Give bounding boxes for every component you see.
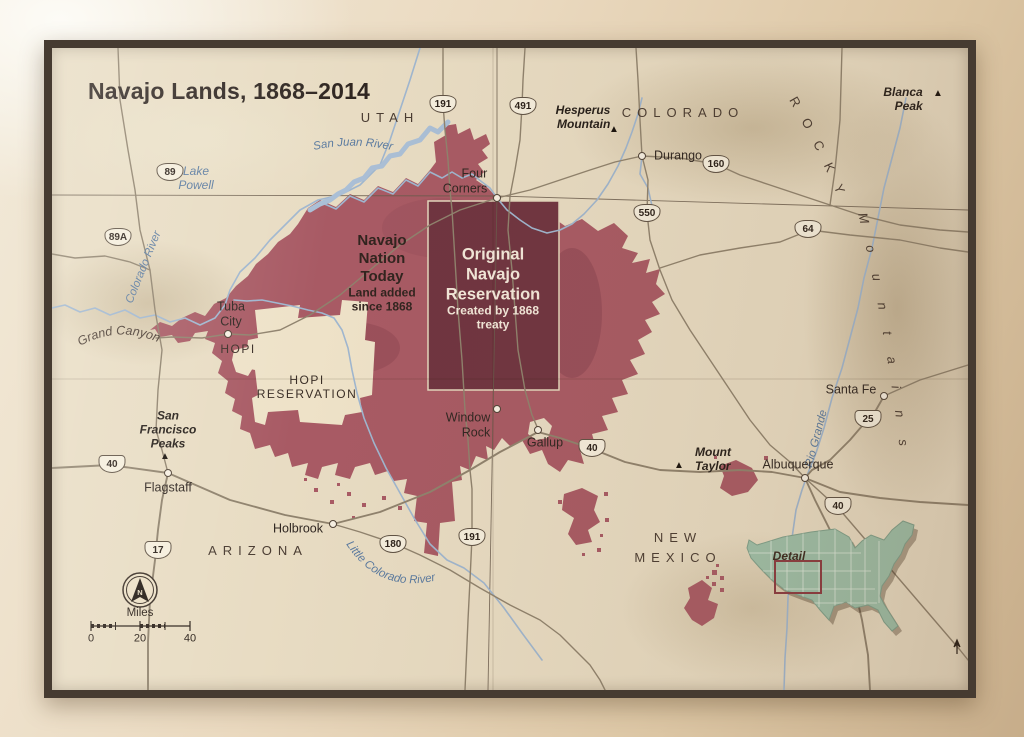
albuquerque-marker — [801, 474, 809, 482]
hopi-reservation-label: HOPI RESERVATION — [257, 373, 358, 401]
tuba-city-marker — [224, 330, 232, 338]
holbrook-marker — [329, 520, 337, 528]
san-francisco-peaks-icon: ▲ — [160, 452, 170, 462]
scale-bar — [91, 621, 190, 631]
blanca-peak-icon: ▲ — [933, 89, 943, 99]
map-art: San Juan River Colorado River Grand Cany… — [52, 48, 968, 690]
window-rock-marker — [493, 405, 501, 413]
original-reservation-label: Original Navajo Reservation — [446, 245, 540, 304]
albuquerque-label: Albuquerque — [763, 458, 834, 473]
mount-taylor-label: Mount Taylor — [695, 446, 731, 474]
us-89a-road — [52, 254, 150, 270]
holbrook-label: Holbrook — [273, 522, 323, 537]
scale-miles-label: Miles — [127, 607, 154, 621]
lake-powell-label: Lake Powell — [178, 164, 213, 192]
flagstaff-label: Flagstaff — [144, 481, 192, 496]
four-corners-marker — [493, 194, 501, 202]
state-label-new-mexico: NEW MEXICO — [634, 528, 721, 568]
inset-detail-label: Detail — [773, 549, 806, 563]
scale-20-label: 20 — [134, 633, 146, 646]
land-added-label: Land added since 1868 — [348, 286, 415, 315]
state-label-utah: UTAH — [361, 108, 419, 128]
durango-label: Durango — [654, 149, 702, 164]
state-label-colorado: COLORADO — [622, 103, 744, 123]
flagstaff-marker — [164, 469, 172, 477]
navajo-nation-today-label: Navajo Nation Today — [357, 232, 406, 286]
hesperus-mountain-label: Hesperus Mountain — [556, 104, 611, 132]
us-160-east-road — [497, 156, 968, 232]
santa-fe-marker — [880, 392, 888, 400]
north-compass: N — [123, 573, 157, 607]
window-rock-label: Window Rock — [446, 410, 490, 440]
mount-taylor-icon: ▲ — [674, 461, 684, 471]
rocky-label: ROCKY — [786, 94, 854, 210]
hesperus-mountain-icon: ▲ — [609, 125, 619, 135]
scale-40-label: 40 — [184, 633, 196, 646]
four-corners-label: Four Corners — [443, 166, 487, 196]
map-title: Navajo Lands, 1868–2014 — [88, 78, 370, 105]
gallup-marker — [534, 426, 542, 434]
hopi-label: HOPI — [220, 342, 255, 356]
durango-marker — [638, 152, 646, 160]
mountains-label: Mountains — [855, 211, 914, 468]
scale-0-label: 0 — [88, 633, 94, 646]
created-by-treaty-label: Created by 1868 treaty — [447, 304, 539, 333]
animas-river — [640, 156, 652, 206]
santa-fe-label: Santa Fe — [826, 383, 877, 398]
usa-inset-map — [747, 521, 918, 636]
blanca-peak-label: Blanca Peak — [883, 86, 922, 114]
grand-canyon-label: Grand Canyon — [75, 323, 162, 348]
san-juan-river-label: San Juan River — [312, 137, 395, 154]
state-label-arizona: ARIZONA — [208, 541, 308, 561]
map-frame: San Juan River Colorado River Grand Cany… — [44, 40, 976, 698]
tuba-city-label: Tuba City — [217, 299, 245, 329]
compass-n-letter: N — [137, 588, 142, 597]
gallup-label: Gallup — [527, 436, 563, 451]
navajo-lands-map: San Juan River Colorado River Grand Cany… — [52, 48, 968, 690]
san-francisco-peaks-label: San Francisco Peaks — [140, 409, 197, 450]
small-north-arrow — [954, 640, 960, 654]
